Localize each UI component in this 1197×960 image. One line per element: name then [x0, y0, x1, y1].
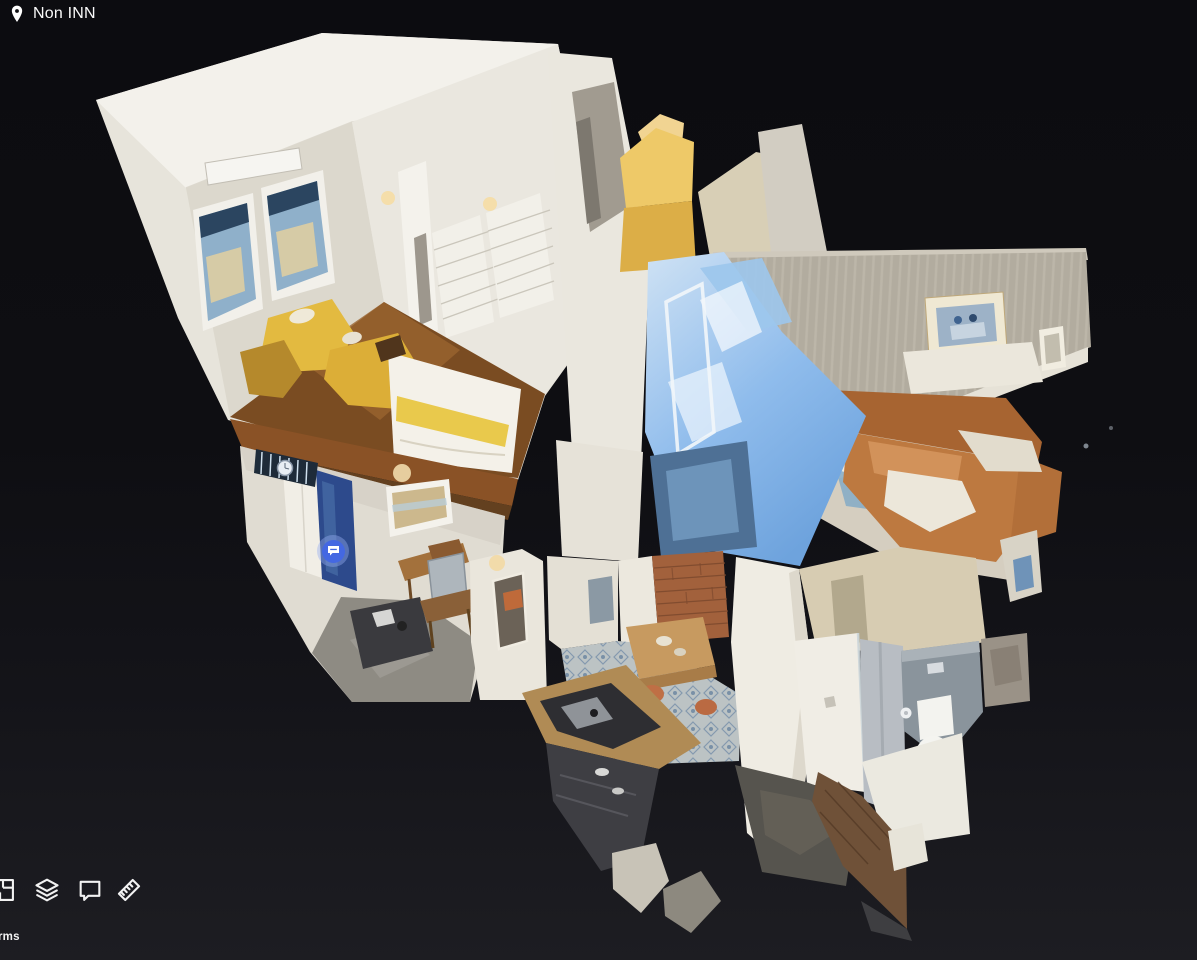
mattertag-comment[interactable]	[317, 535, 349, 567]
measure-button[interactable]	[113, 874, 145, 906]
location-pin-icon	[7, 4, 27, 24]
layers-button[interactable]	[31, 874, 63, 906]
ruler-icon	[115, 876, 143, 904]
comment-icon	[76, 876, 104, 904]
page-title: Non INN	[33, 5, 96, 23]
room-dining-kitchen[interactable]	[470, 549, 741, 933]
floorplan-view-button[interactable]	[0, 874, 19, 906]
room-bedroom[interactable]	[96, 33, 614, 520]
layers-icon	[33, 876, 61, 904]
mattertag-disc	[322, 540, 345, 563]
floorplan-icon	[0, 876, 17, 904]
header: Non INN	[7, 4, 96, 24]
comments-button[interactable]	[74, 874, 106, 906]
dollhouse-viewport[interactable]	[0, 0, 1197, 960]
dollhouse-render	[0, 0, 1197, 960]
comment-bubble-icon	[327, 545, 340, 557]
terms-link[interactable]: Terms	[0, 931, 20, 943]
